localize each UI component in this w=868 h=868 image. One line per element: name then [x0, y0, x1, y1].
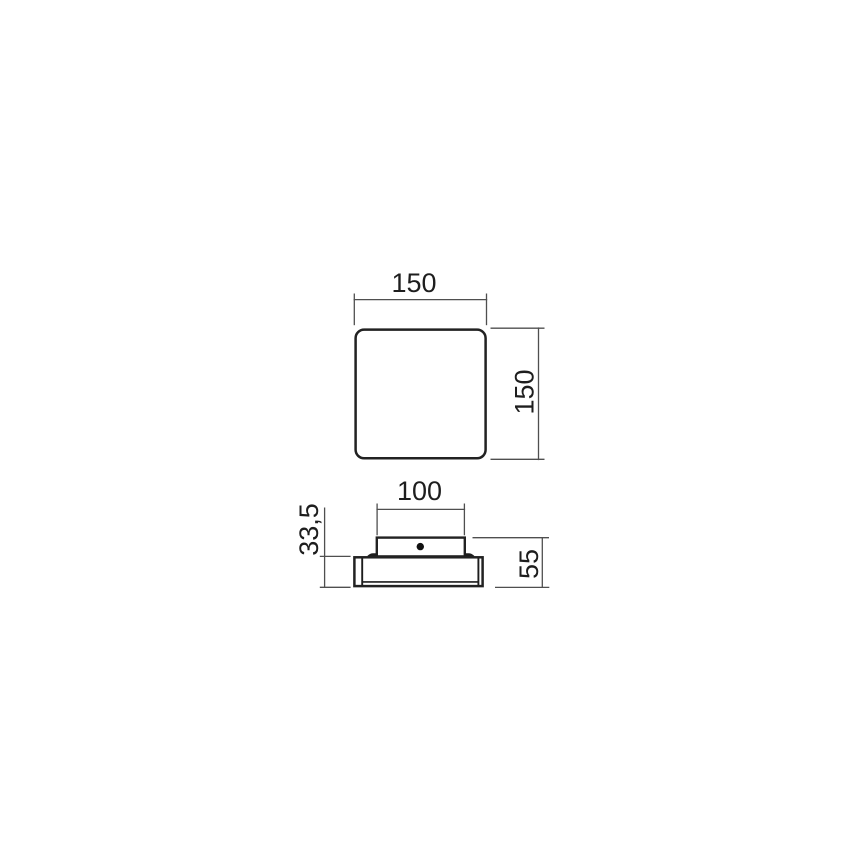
svg-text:150: 150	[510, 369, 540, 414]
svg-text:100: 100	[397, 476, 442, 506]
svg-text:33,5: 33,5	[294, 503, 324, 556]
svg-text:150: 150	[391, 268, 436, 298]
svg-text:55: 55	[514, 549, 544, 579]
